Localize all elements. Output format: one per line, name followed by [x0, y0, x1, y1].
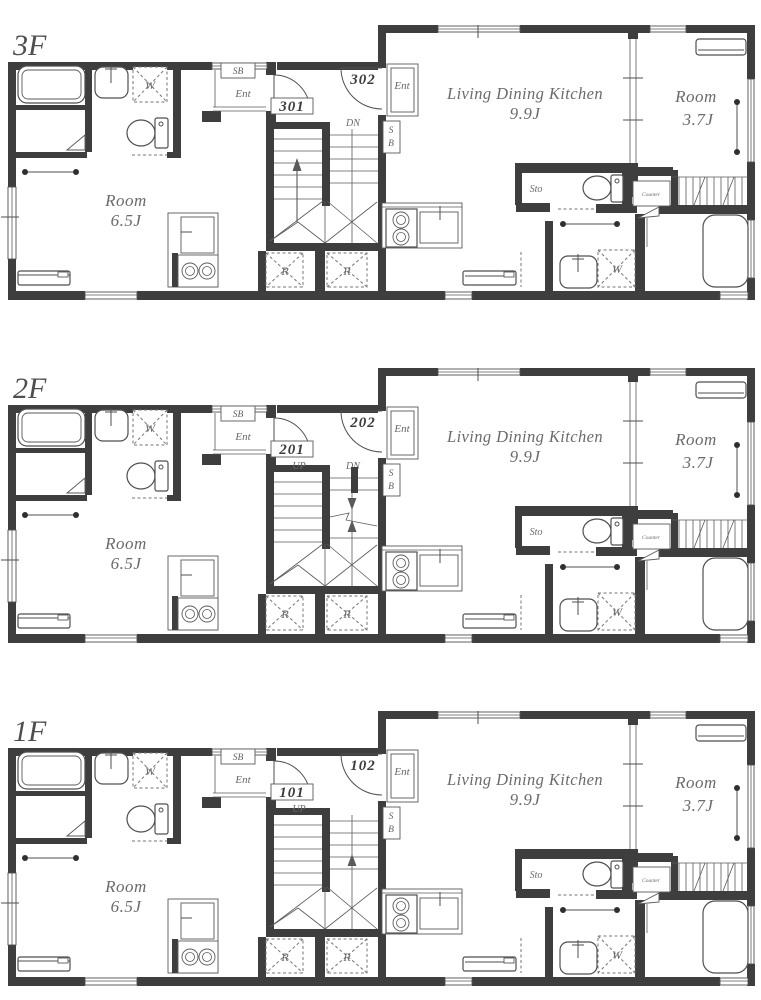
floor-plans: 3F: [0, 0, 761, 991]
room-65-label: Room: [104, 191, 147, 210]
washing-machine-space: W: [598, 593, 635, 630]
washing-machine-space: W: [598, 250, 635, 287]
svg-text:S: S: [389, 126, 394, 136]
wash-basin: [560, 940, 597, 974]
unit-number-left-1: 201: [278, 442, 305, 458]
washing-machine-space: W: [133, 410, 167, 445]
svg-text:W: W: [612, 948, 623, 962]
bathtub: [18, 752, 85, 789]
sliding-door-room37: [734, 442, 740, 498]
svg-text:SB: SB: [233, 67, 244, 77]
bench: [463, 271, 516, 285]
svg-text:SB: SB: [233, 410, 244, 420]
walls: [8, 368, 755, 643]
bench: [463, 614, 516, 628]
sliding-door-washroom: [560, 564, 620, 570]
unit-left-1: W SB Ent: [18, 406, 266, 630]
entrance-left: SB Ent: [213, 406, 266, 454]
svg-text:W: W: [612, 605, 623, 619]
sliding-door-washroom: [560, 221, 620, 227]
ac-unit: [696, 382, 746, 398]
bath-door-swing: [67, 821, 85, 836]
bath-door-swing: [67, 478, 85, 493]
svg-text:9.9J: 9.9J: [510, 790, 542, 809]
svg-text:R: R: [342, 950, 351, 964]
room-65-label: Room: [104, 877, 147, 896]
hanger-closet: [672, 520, 748, 548]
svg-text:S: S: [389, 469, 394, 479]
refrigerator-space-right: R: [327, 253, 367, 287]
toilet: [583, 175, 623, 202]
washing-machine-space: W: [133, 67, 167, 102]
refrigerator-space-right: R: [327, 939, 367, 973]
svg-text:Counter: Counter: [642, 878, 661, 884]
svg-text:Ent: Ent: [393, 423, 410, 435]
floor-label-1: 2F: [13, 372, 47, 405]
stair-treads-lower: [330, 159, 378, 183]
walls: [8, 25, 755, 300]
stair-landing-wall: [351, 467, 358, 493]
svg-text:9.9J: 9.9J: [510, 447, 542, 466]
unit-left-2: W SB Ent: [18, 749, 266, 973]
counter: Counter: [633, 181, 670, 206]
floor-plan-1: 2F: [0, 368, 761, 648]
refrigerator-space-left: R: [266, 939, 303, 973]
svg-text:SB: SB: [233, 753, 244, 763]
svg-text:6.5J: 6.5J: [111, 211, 143, 230]
stair-winders: [270, 887, 377, 929]
ac-unit: [696, 725, 746, 741]
hanger-closet: [672, 177, 748, 205]
sliding-partition: [623, 39, 643, 163]
svg-text:Ent: Ent: [234, 774, 251, 786]
svg-text:6.5J: 6.5J: [111, 554, 143, 573]
refrigerator-space-left: R: [266, 253, 303, 287]
wash-basin: [560, 597, 597, 631]
svg-text:R: R: [280, 950, 289, 964]
unit-number-left-2: 101: [279, 785, 305, 801]
hanger-closet: [672, 863, 748, 891]
svg-text:Ent: Ent: [393, 766, 410, 778]
bathtub: [703, 215, 748, 287]
arrow-up-icon: [293, 158, 302, 222]
room-65-label: Room: [104, 534, 147, 553]
wash-basin: [95, 65, 128, 98]
sliding-partition: [623, 382, 643, 506]
kitchen: [382, 203, 462, 248]
svg-text:Ent: Ent: [393, 80, 410, 92]
wash-basin: [560, 254, 597, 288]
room-37-label: Room: [674, 87, 717, 106]
toilet: [127, 461, 168, 491]
ldk-label: Living Dining Kitchen: [446, 427, 603, 446]
sliding-partition: [623, 725, 643, 849]
svg-text:9.9J: 9.9J: [510, 104, 542, 123]
room-37-label: Room: [674, 430, 717, 449]
up-label: UP: [292, 461, 305, 472]
floor-label-0: 3F: [12, 29, 47, 62]
svg-text:W: W: [612, 262, 623, 276]
svg-text:3.7J: 3.7J: [682, 453, 715, 472]
unit-number-right-2: 102: [350, 758, 376, 774]
svg-text:B: B: [388, 482, 394, 492]
entrance-right: Ent S B: [383, 750, 418, 839]
cabinet: [18, 957, 70, 971]
sliding-door-washroom: [560, 907, 620, 913]
storage-label: Sto: [530, 527, 543, 538]
ac-unit: [696, 39, 746, 55]
svg-text:Ent: Ent: [234, 431, 251, 443]
cabinet: [18, 614, 70, 628]
bathtub: [703, 901, 748, 973]
cabinet: [18, 271, 70, 285]
svg-text:R: R: [280, 607, 289, 621]
storage-label: Sto: [530, 184, 543, 195]
svg-text:B: B: [388, 139, 394, 149]
counter: Counter: [633, 524, 670, 549]
svg-text:Counter: Counter: [642, 535, 661, 541]
kitchenette: [168, 213, 218, 287]
unit-number-right-0: 302: [349, 72, 376, 88]
washing-machine-space: W: [133, 753, 167, 788]
entrance-right: Ent S B: [383, 407, 418, 496]
toilet: [127, 118, 168, 148]
floor-label-2: 1F: [13, 715, 47, 748]
stair-winders: [270, 544, 377, 586]
bench: [463, 957, 516, 971]
svg-text:3.7J: 3.7J: [682, 110, 715, 129]
kitchen: [382, 546, 462, 591]
wash-basin: [95, 408, 128, 441]
kitchen: [382, 889, 462, 934]
wash-basin: [95, 751, 128, 784]
entrance-left: SB Ent: [213, 63, 266, 111]
walls: [8, 711, 755, 986]
bathtub: [18, 66, 85, 103]
svg-text:R: R: [342, 607, 351, 621]
svg-text:S: S: [389, 812, 394, 822]
svg-text:6.5J: 6.5J: [111, 897, 143, 916]
unit-number-right-1: 202: [349, 415, 376, 431]
floor-plan-2: 1F: [0, 711, 761, 991]
kitchenette: [168, 556, 218, 630]
kitchenette: [168, 899, 218, 973]
svg-text:3.7J: 3.7J: [682, 796, 715, 815]
room-37-label: Room: [674, 773, 717, 792]
arrow-up-icon: [348, 854, 357, 866]
sliding-door-room37: [734, 99, 740, 155]
unit-left-0: W SB Ent: [18, 63, 266, 287]
svg-text:R: R: [342, 264, 351, 278]
bathtub: [703, 558, 748, 630]
sliding-door-room: [22, 512, 79, 518]
toilet: [583, 861, 623, 888]
sliding-door-room: [22, 169, 79, 175]
bathtub: [18, 409, 85, 446]
counter: Counter: [633, 867, 670, 892]
washing-machine-space: W: [598, 936, 635, 973]
storage-label: Sto: [530, 870, 543, 881]
toilet: [583, 518, 623, 545]
unit-number-left-0: 301: [278, 99, 305, 115]
svg-text:Counter: Counter: [642, 192, 661, 198]
ldk-label: Living Dining Kitchen: [446, 770, 603, 789]
entrance-right: Ent S B: [383, 64, 418, 153]
stair-winders: [270, 201, 377, 243]
svg-text:R: R: [280, 264, 289, 278]
refrigerator-space-left: R: [266, 596, 303, 630]
arrow-down-icon: [348, 498, 357, 510]
svg-text:W: W: [145, 78, 156, 92]
sliding-door-room: [22, 855, 79, 861]
bath-door-swing: [67, 135, 85, 150]
up-label: UP: [292, 804, 305, 815]
entrance-left: SB Ent: [213, 749, 266, 797]
svg-text:W: W: [145, 421, 156, 435]
sliding-door-room37: [734, 785, 740, 841]
floor-plan-0: 3F: [0, 25, 761, 305]
toilet: [127, 804, 168, 834]
svg-text:W: W: [145, 764, 156, 778]
ldk-label: Living Dining Kitchen: [446, 84, 603, 103]
dn-label: DN: [345, 118, 361, 129]
refrigerator-space-right: R: [327, 596, 367, 630]
svg-text:Ent: Ent: [234, 88, 251, 100]
svg-text:B: B: [388, 825, 394, 835]
